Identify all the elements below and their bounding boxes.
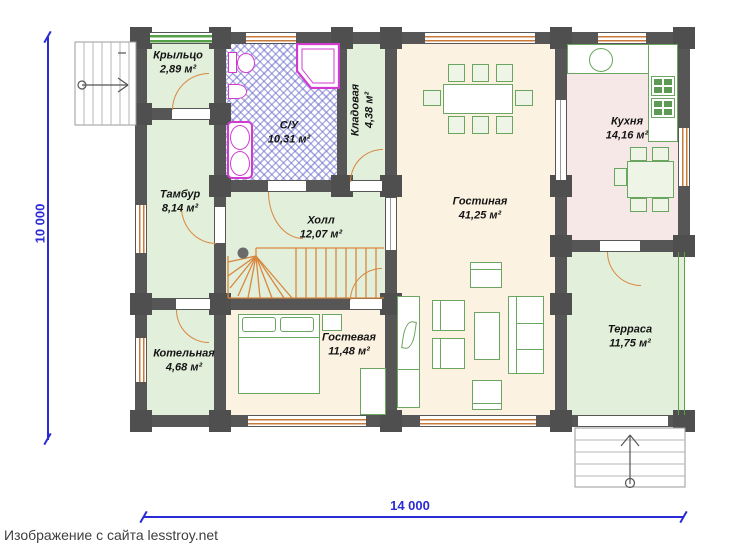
door-opening (172, 109, 210, 119)
chair (614, 168, 627, 186)
chair (448, 116, 465, 134)
log-end (380, 175, 402, 197)
armchair (432, 338, 465, 369)
passage-opening (386, 198, 396, 250)
source-caption: Изображение с сайта lesstroy.net (4, 527, 218, 543)
dimension-label-vertical: 10 000 (33, 189, 48, 259)
wall (555, 32, 567, 427)
door-opening (215, 207, 225, 243)
door-opening (350, 299, 382, 309)
room-name: Гостиная (453, 195, 508, 209)
log-end (209, 410, 231, 432)
dimension-label-horizontal: 14 000 (340, 498, 480, 513)
stove-icon (651, 76, 675, 96)
room-name: Котельная (153, 347, 215, 361)
room-area: 12,07 м² (300, 228, 342, 242)
pillow (280, 317, 314, 332)
floor-plan: Крыльцо 2,89 м² С/У 10,31 м² Кладовая 4,… (0, 0, 731, 548)
kitchen-table (627, 161, 674, 198)
log-end (380, 27, 402, 49)
door-opening (176, 299, 210, 309)
room-name: Крыльцо (153, 49, 203, 63)
passage-opening (556, 100, 566, 180)
terrace-stairs (574, 427, 686, 489)
chair (630, 198, 647, 212)
stair-post (238, 248, 249, 259)
sofa-back-line (516, 297, 517, 373)
room-area: 41,25 м² (453, 209, 508, 223)
washbasin-icon (228, 84, 247, 99)
room-name: Гостевая (322, 331, 376, 345)
log-end (550, 410, 572, 432)
room-name: Кладовая (349, 84, 363, 136)
room-area: 14,16 м² (606, 129, 648, 143)
room-name: Кухня (606, 115, 648, 129)
sofa-seat-line (516, 323, 543, 324)
chair (472, 64, 489, 82)
sofa-seat-line (516, 349, 543, 350)
armchair (432, 300, 465, 331)
room-name: С/У (268, 119, 310, 133)
bathtub-oval-icon (230, 125, 250, 150)
label-boiler: Котельная 4,68 м² (153, 347, 215, 376)
toilet-bowl-icon (237, 53, 255, 73)
room-area: 2,89 м² (153, 63, 203, 77)
window (136, 338, 146, 382)
staircase-winder (226, 246, 384, 299)
log-end (130, 293, 152, 315)
door-opening (350, 181, 382, 191)
dining-table (443, 84, 513, 114)
chair (496, 64, 513, 82)
label-hall: Холл 12,07 м² (300, 214, 342, 243)
chair (652, 198, 669, 212)
passage-line (390, 198, 391, 250)
window (248, 416, 366, 426)
label-guest: Гостевая 11,48 м² (322, 331, 376, 360)
armchair-line (440, 301, 441, 330)
room-area: 8,14 м² (160, 202, 200, 216)
chair (515, 90, 533, 106)
window (420, 416, 536, 426)
room-name: Холл (300, 214, 342, 228)
window (679, 128, 689, 186)
log-end (550, 293, 572, 315)
decor-leaf-icon (401, 320, 417, 349)
entrance-stairs (74, 41, 137, 126)
sofa (508, 296, 544, 374)
window (598, 33, 646, 43)
label-porch: Крыльцо 2,89 м² (153, 49, 203, 78)
kitchen-sink-icon (589, 48, 613, 72)
room-name: Тамбур (160, 188, 200, 202)
room-area: 4,38 м² (363, 84, 377, 136)
armchair-line (440, 339, 441, 368)
window (425, 33, 535, 43)
terrace-railing (678, 252, 685, 415)
chair (630, 147, 647, 161)
armchair (470, 262, 502, 288)
log-end (209, 175, 231, 197)
window (246, 33, 296, 43)
pillow (242, 317, 276, 332)
dimension-tick (43, 433, 51, 445)
porch-railing-window (150, 33, 212, 43)
window (136, 205, 146, 253)
dimension-line-horizontal (143, 516, 683, 518)
room-area: 11,48 м² (322, 345, 376, 359)
label-storage: Кладовая 4,38 м² (349, 84, 378, 136)
chair (423, 90, 441, 106)
terrace-exit-opening (578, 416, 668, 426)
label-kitchen: Кухня 14,16 м² (606, 115, 648, 144)
label-vestibule: Тамбур 8,14 м² (160, 188, 200, 217)
passage-line (560, 100, 561, 180)
fireplace-divider (398, 369, 419, 370)
room-area: 4,68 м² (153, 361, 215, 375)
chair (496, 116, 513, 134)
log-end (550, 235, 572, 257)
label-living: Гостиная 41,25 м² (453, 195, 508, 224)
nightstand (322, 314, 342, 331)
chair (472, 116, 489, 134)
oven-icon (651, 98, 675, 118)
armchair-line (473, 403, 501, 404)
room-name: Терраса (608, 323, 652, 337)
wardrobe (360, 368, 386, 415)
log-end (209, 27, 231, 49)
room-area: 10,31 м² (268, 133, 310, 147)
coffee-table (474, 312, 500, 360)
shower-icon (296, 43, 340, 89)
chair (652, 147, 669, 161)
bed (238, 314, 320, 394)
armchair-line (471, 269, 501, 270)
label-bathroom: С/У 10,31 м² (268, 119, 310, 148)
blanket-line (239, 337, 319, 338)
bathtub-oval-icon (230, 151, 250, 176)
chair (448, 64, 465, 82)
label-terrace: Терраса 11,75 м² (608, 323, 652, 352)
room-area: 11,75 м² (608, 337, 652, 351)
door-opening (600, 241, 640, 251)
toilet-tank-icon (228, 52, 237, 73)
armchair (472, 380, 502, 410)
log-end (130, 410, 152, 432)
door-opening (268, 181, 306, 191)
fireplace (397, 296, 420, 408)
